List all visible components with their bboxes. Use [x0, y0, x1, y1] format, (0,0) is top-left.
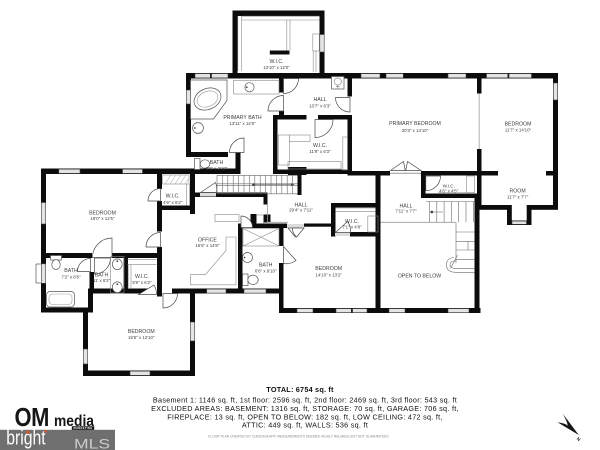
svg-text:W.I.C.: W.I.C. [166, 194, 180, 200]
svg-text:7'1" x 4'8": 7'1" x 4'8" [342, 225, 362, 230]
svg-text:11' x 6'2": 11' x 6'2" [93, 278, 111, 283]
svg-text:7'11" x 7'7": 7'11" x 7'7" [395, 209, 417, 214]
svg-text:14'10" x 13'2": 14'10" x 13'2" [315, 273, 342, 278]
svg-text:MARKETING: MARKETING [74, 426, 93, 430]
svg-text:FLOOR PLAN CREATED BY CUBICASA: FLOOR PLAN CREATED BY CUBICASA APP. MEAS… [208, 435, 389, 439]
svg-text:TOTAL: 6754 sq. ft: TOTAL: 6754 sq. ft [266, 385, 334, 394]
svg-text:PRIMARY BEDROOM: PRIMARY BEDROOM [389, 121, 441, 127]
svg-text:bright: bright [6, 428, 46, 450]
svg-text:ROOM: ROOM [510, 188, 526, 194]
svg-text:OPEN TO BELOW: OPEN TO BELOW [398, 273, 441, 279]
svg-text:6'6" x 2'10": 6'6" x 2'10" [206, 166, 228, 171]
svg-text:6'8" x 9'10": 6'8" x 9'10" [255, 268, 277, 273]
svg-text:ATTIC: 449 sq. ft, WALLS: 536: ATTIC: 449 sq. ft, WALLS: 536 sq. ft [242, 421, 368, 430]
svg-text:16'6" x 14'8": 16'6" x 14'8" [195, 243, 220, 248]
svg-text:10'7" x 6'3": 10'7" x 6'3" [309, 103, 331, 108]
svg-text:BEDROOM: BEDROOM [505, 121, 532, 127]
svg-text:4'9" x 6'2": 4'9" x 6'2" [163, 200, 183, 205]
svg-text:11'7" x 14'10": 11'7" x 14'10" [505, 128, 532, 133]
svg-text:13'10" x 12'0": 13'10" x 12'0" [263, 65, 290, 70]
svg-text:7'2" x 8'6": 7'2" x 8'6" [61, 274, 81, 279]
svg-text:29'4" x 7'11": 29'4" x 7'11" [289, 208, 313, 213]
svg-text:BATH: BATH [64, 268, 78, 274]
svg-text:11'7" x 7'7": 11'7" x 7'7" [507, 195, 529, 200]
svg-text:15'5" x 12'10": 15'5" x 12'10" [128, 335, 155, 340]
svg-text:MLS: MLS [74, 435, 110, 450]
svg-text:5'9" x 6'2": 5'9" x 6'2" [132, 280, 152, 285]
svg-text:18'0" x 12'5": 18'0" x 12'5" [90, 216, 115, 221]
svg-text:20'3" x 14'10": 20'3" x 14'10" [402, 128, 429, 133]
svg-text:HALL: HALL [314, 97, 327, 103]
svg-text:BEDROOM: BEDROOM [315, 266, 342, 272]
svg-text:4'6" x 4'5": 4'6" x 4'5" [439, 189, 459, 194]
svg-text:11'9" x 6'3": 11'9" x 6'3" [309, 149, 331, 154]
svg-text:13'11" x 14'9": 13'11" x 14'9" [229, 121, 256, 126]
